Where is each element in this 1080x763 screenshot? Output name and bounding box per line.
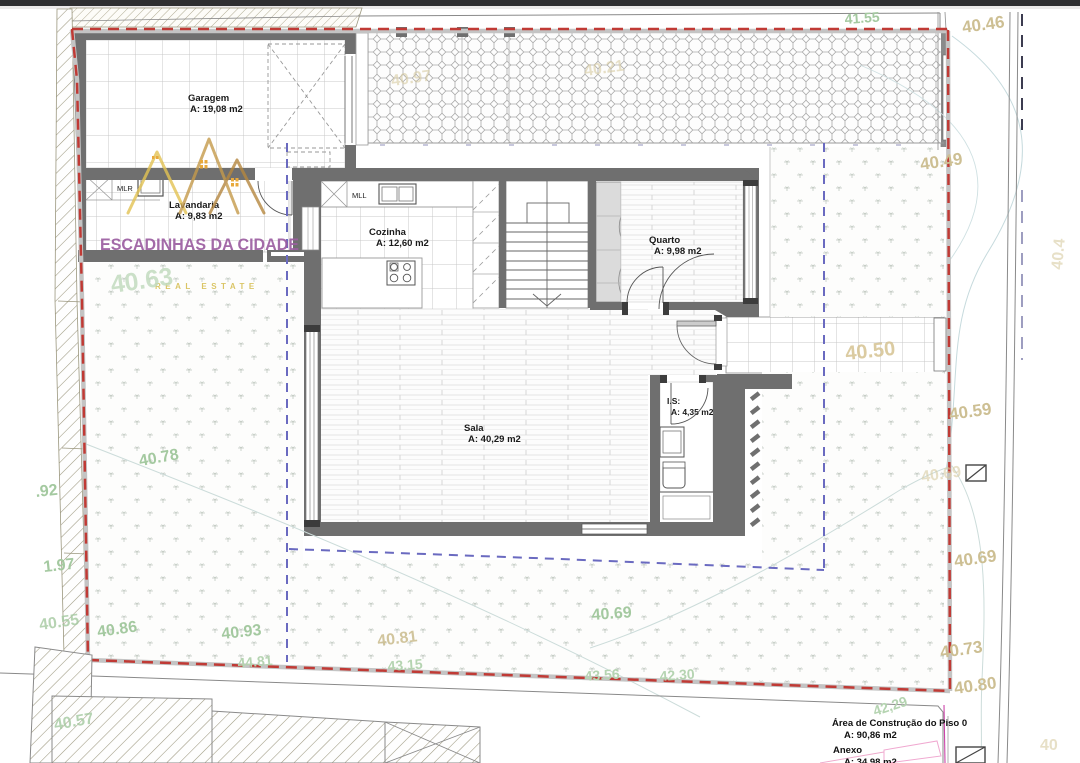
svg-text:ESCADINHAS DA CIDADE: ESCADINHAS DA CIDADE [100, 235, 299, 254]
svg-text:.92: .92 [35, 482, 59, 501]
svg-text:41.55: 41.55 [844, 9, 880, 27]
svg-text:MLL: MLL [352, 191, 367, 200]
svg-text:40.69: 40.69 [591, 604, 632, 624]
svg-text:1.97: 1.97 [43, 556, 76, 576]
svg-text:Cozinha: Cozinha [369, 227, 407, 238]
svg-text:43.15: 43.15 [387, 656, 423, 674]
svg-text:42.30: 42.30 [659, 666, 695, 684]
svg-text:A: 9,98 m2: A: 9,98 m2 [654, 246, 702, 257]
svg-text:40: 40 [1040, 737, 1058, 754]
svg-text:A: 34,98 m2: A: 34,98 m2 [844, 757, 897, 763]
svg-text:A: 9,83 m2: A: 9,83 m2 [175, 211, 223, 222]
svg-text:A: 19,08 m2: A: 19,08 m2 [190, 104, 243, 115]
svg-text:44.81: 44.81 [237, 652, 274, 671]
svg-text:Garagem: Garagem [188, 93, 229, 104]
svg-text:Anexo: Anexo [833, 745, 862, 756]
svg-text:I.S:: I.S: [667, 396, 680, 406]
svg-text:40.4: 40.4 [1049, 238, 1069, 271]
svg-text:A: 40,29 m2: A: 40,29 m2 [468, 434, 521, 445]
svg-text:A: 4,35 m2: A: 4,35 m2 [671, 407, 714, 417]
svg-text:A: 12,60 m2: A: 12,60 m2 [376, 238, 429, 249]
svg-text:A: 90,86 m2: A: 90,86 m2 [844, 730, 897, 741]
svg-text:Área de Construção do Piso 0: Área de Construção do Piso 0 [832, 718, 967, 729]
svg-text:Sala: Sala [464, 423, 484, 434]
svg-text:MLR: MLR [117, 184, 133, 193]
svg-text:Quarto: Quarto [649, 235, 680, 246]
svg-text:43.56: 43.56 [584, 666, 620, 684]
